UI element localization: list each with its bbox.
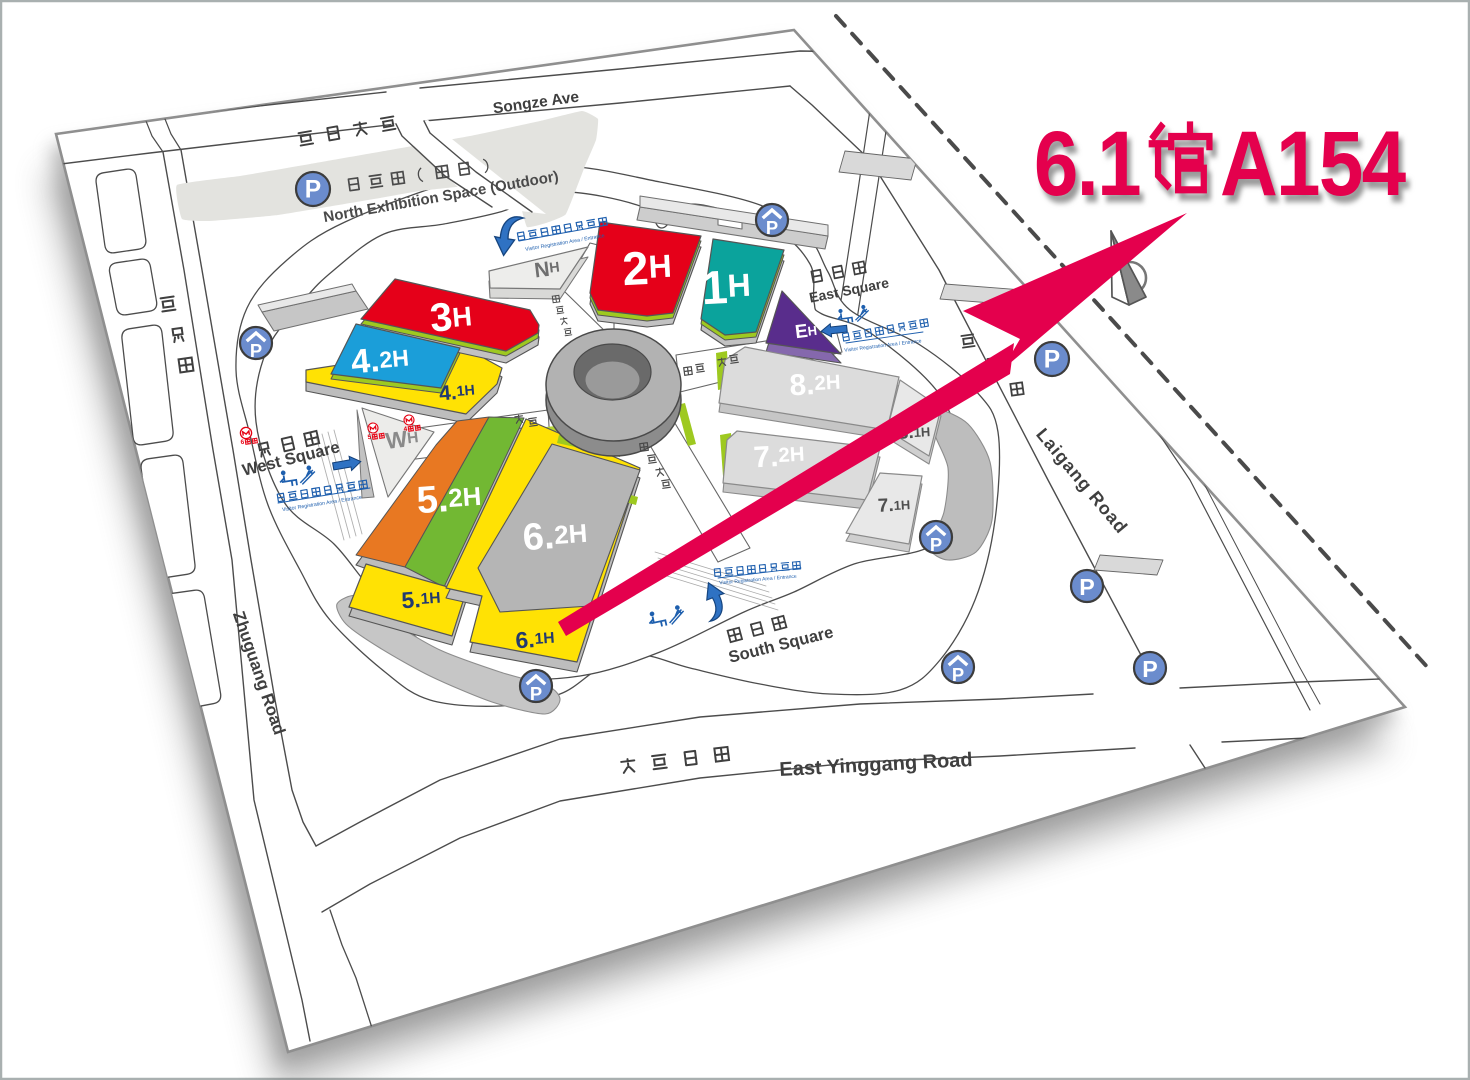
svg-text:P: P bbox=[1079, 574, 1094, 600]
svg-text:A154: A154 bbox=[1220, 113, 1406, 215]
svg-text:P: P bbox=[952, 664, 964, 685]
svg-text:P: P bbox=[1142, 656, 1157, 682]
svg-text:P: P bbox=[305, 177, 321, 204]
svg-text:6.1: 6.1 bbox=[1034, 113, 1140, 215]
svg-text:P: P bbox=[530, 683, 542, 704]
svg-text:P: P bbox=[1044, 347, 1060, 374]
svg-text:P: P bbox=[766, 217, 778, 238]
svg-text:P: P bbox=[930, 534, 942, 555]
svg-text:P: P bbox=[250, 340, 262, 361]
